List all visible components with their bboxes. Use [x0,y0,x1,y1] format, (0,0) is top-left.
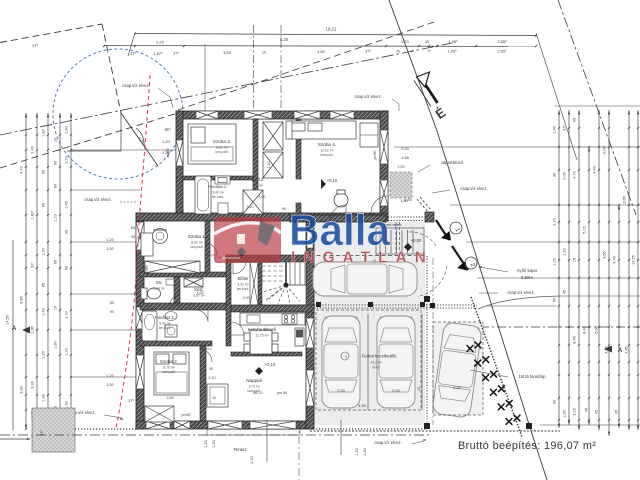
svg-text:2,10: 2,10 [187,302,194,306]
svg-text:pm 90: pm 90 [277,391,287,395]
svg-text:pm90: pm90 [145,266,149,275]
svg-text:2,8 m²: 2,8 m² [253,184,263,188]
svg-text:1,80: 1,80 [42,129,46,136]
svg-text:Fedett kocsibeálló: Fedett kocsibeálló [362,354,397,359]
svg-text:45: 45 [615,410,619,414]
svg-text:60: 60 [110,301,114,305]
svg-text:4,70: 4,70 [20,166,24,173]
svg-text:+0,10: +0,10 [327,178,338,183]
svg-text:1,20: 1,20 [42,351,46,358]
svg-text:5,00: 5,00 [595,326,599,333]
svg-text:1,20: 1,20 [355,448,359,455]
svg-text:pm90: pm90 [166,149,170,158]
svg-text:1,00: 1,00 [197,291,204,295]
svg-text:10: 10 [54,138,58,142]
svg-text:50: 50 [553,298,557,302]
svg-text:90: 90 [65,230,69,234]
svg-text:60: 60 [65,266,69,270]
svg-text:Terasz: Terasz [233,447,247,452]
svg-text:45: 45 [425,40,429,44]
svg-text:csap.víz elvez.: csap.víz elvez. [374,440,401,445]
svg-text:Közl.2.: Közl.2. [252,177,265,182]
svg-text:1,50: 1,50 [106,247,113,251]
svg-text:lam.padl.: lam.padl. [321,153,334,157]
svg-text:2,40: 2,40 [250,456,254,463]
svg-text:1,50: 1,50 [363,448,367,455]
svg-text:+0,00: +0,00 [411,238,422,243]
svg-text:1,00: 1,00 [307,287,311,294]
svg-text:70: 70 [396,50,400,54]
svg-text:40: 40 [417,387,421,391]
svg-text:5,06 m²: 5,06 m² [159,322,171,326]
svg-text:90: 90 [131,235,135,239]
svg-text:2,24 m²: 2,24 m² [153,287,165,291]
svg-text:3,65: 3,65 [623,196,627,203]
svg-text:Szoba 3.: Szoba 3. [213,139,231,144]
svg-text:2,70: 2,70 [65,311,69,318]
svg-text:12,02 m²: 12,02 m² [320,149,334,153]
svg-text:Szoba 2.: Szoba 2. [160,359,178,364]
svg-text:17,5 m²: 17,5 m² [248,385,260,389]
svg-text:1,80: 1,80 [54,341,58,348]
svg-text:80: 80 [54,260,58,264]
svg-text:záportározó: záportározó [441,160,464,165]
svg-text:30: 30 [553,400,557,404]
svg-text:Konyha-Étkező: Konyha-Étkező [248,327,277,332]
svg-text:15/15 faoszlop: 15/15 faoszlop [518,374,546,379]
svg-text:Fürdősz.2.: Fürdősz.2. [209,184,228,189]
svg-text:pm90: pm90 [182,413,191,417]
svg-text:1,90: 1,90 [553,126,557,133]
svg-text:45: 45 [595,410,599,414]
svg-text:3,42 m²: 3,42 m² [212,191,224,195]
svg-text:térkő: térkő [372,366,379,370]
svg-text:1,15: 1,15 [553,258,557,265]
svg-text:5,15: 5,15 [583,226,587,233]
svg-text:2,00: 2,00 [243,296,250,300]
svg-text:4,40: 4,40 [593,166,597,173]
svg-text:10: 10 [262,51,266,55]
svg-text:ker.burk.: ker.burk. [159,326,171,330]
svg-text:ker.burk.: ker.burk. [212,195,224,199]
svg-text:lam.padl.: lam.padl. [216,150,229,154]
svg-text:10: 10 [212,396,216,400]
svg-text:2,10: 2,10 [247,205,254,209]
svg-text:4,70: 4,70 [573,171,577,178]
svg-text:2,00: 2,00 [563,172,567,179]
svg-text:pm90: pm90 [373,151,377,160]
svg-text:csap.víz elvez.: csap.víz elvez. [507,290,534,295]
svg-text:1,50: 1,50 [106,383,113,387]
svg-text:csap.víz elvez.: csap.víz elvez. [354,94,381,99]
svg-text:Fürdősz.1.: Fürdősz.1. [155,315,175,320]
svg-text:1,50: 1,50 [65,401,69,408]
svg-text:45: 45 [585,408,589,412]
svg-text:lam.padl.: lam.padl. [191,245,204,249]
svg-text:1,40: 1,40 [42,308,46,315]
svg-text:2,50: 2,50 [337,388,346,393]
svg-text:15: 15 [573,258,577,262]
svg-text:60°: 60° [165,127,172,132]
svg-text:1,70: 1,70 [401,39,410,44]
svg-text:Nappali: Nappali [246,378,262,383]
svg-text:nyíló kapu: nyíló kapu [517,268,538,273]
svg-text:3,30: 3,30 [20,386,24,393]
svg-text:3,15: 3,15 [573,408,577,415]
svg-text:9,85: 9,85 [20,296,24,303]
svg-text:lam.padl.: lam.padl. [163,370,176,374]
svg-text:3,30: 3,30 [31,381,35,388]
svg-text:90: 90 [282,207,286,211]
svg-text:8,40: 8,40 [583,326,587,333]
svg-text:1,50: 1,50 [212,440,216,447]
svg-text:2,30: 2,30 [31,326,35,333]
svg-text:4,95: 4,95 [358,403,367,408]
svg-text:A: A [618,347,623,354]
svg-text:csap.víz elvez.: csap.víz elvez. [460,186,487,191]
svg-text:60: 60 [54,184,58,188]
svg-text:90: 90 [54,161,58,165]
svg-text:1,20: 1,20 [204,440,208,447]
svg-text:3,55: 3,55 [223,50,232,55]
svg-text:Szoba 4.: Szoba 4. [318,142,336,147]
svg-text:Előtér: Előtér [238,276,250,281]
svg-text:Szoba 1.: Szoba 1. [188,234,206,239]
svg-text:2,00: 2,00 [398,165,405,169]
svg-text:1,80: 1,80 [65,126,69,133]
svg-text:INGATLAN: INGATLAN [291,250,434,267]
svg-text:86,70: 86,70 [254,391,263,395]
svg-text:2,25: 2,25 [156,40,165,45]
svg-text:90: 90 [110,310,114,314]
svg-text:8,46: 8,46 [573,336,577,343]
svg-text:A: A [12,325,17,332]
svg-text:1,20: 1,20 [106,374,113,378]
svg-text:1,20: 1,20 [106,238,113,242]
svg-text:Balla: Balla [289,206,391,255]
svg-text:45: 45 [563,290,567,294]
svg-text:14,55: 14,55 [6,315,10,325]
svg-text:1,58: 1,58 [401,155,410,160]
svg-text:90: 90 [573,118,577,122]
svg-text:2,10: 2,10 [209,376,216,380]
svg-text:30: 30 [553,173,557,177]
svg-text:1,20: 1,20 [162,139,171,144]
svg-text:8,75 m²: 8,75 m² [163,366,175,370]
svg-text:6,52 m²: 6,52 m² [216,146,228,150]
svg-text:+0,10: +0,10 [265,362,276,367]
svg-text:1,45: 1,45 [65,201,69,208]
svg-text:2,50m: 2,50m [521,275,534,280]
svg-text:Bruttó beépítés: 196,07 m²: Bruttó beépítés: 196,07 m² [458,440,596,452]
svg-text:1,10: 1,10 [54,214,58,221]
svg-text:8,91 m²: 8,91 m² [191,241,203,245]
svg-text:85: 85 [42,283,46,287]
svg-text:2,65: 2,65 [167,396,174,400]
svg-text:4,80: 4,80 [317,49,326,54]
svg-text:90: 90 [209,367,213,371]
svg-text:2,40: 2,40 [31,146,35,153]
svg-text:1,10: 1,10 [65,156,69,163]
svg-text:60: 60 [131,226,135,230]
svg-text:18,21: 18,21 [326,27,338,32]
svg-text:3,65: 3,65 [603,251,607,258]
svg-text:csap.víz elvez.: csap.víz elvez. [84,197,111,202]
svg-text:1,00: 1,00 [259,195,266,199]
svg-text:90: 90 [42,170,46,174]
svg-text:2,20: 2,20 [453,385,462,390]
svg-text:2,10: 2,10 [267,162,271,169]
svg-text:1,30: 1,30 [42,394,46,401]
svg-text:1,20: 1,20 [65,348,69,355]
svg-text:14,55: 14,55 [632,255,636,265]
svg-text:43,2 m²: 43,2 m² [370,361,382,365]
svg-text:2,10: 2,10 [553,218,557,225]
svg-text:4,45: 4,45 [613,256,617,263]
svg-text:4,85: 4,85 [625,346,629,353]
svg-text:Wc: Wc [156,280,162,285]
svg-text:1,20: 1,20 [42,248,46,255]
svg-text:2,50: 2,50 [392,388,401,393]
svg-text:1,20: 1,20 [563,248,567,255]
svg-text:2,00: 2,00 [401,146,410,151]
svg-text:3,32 m²: 3,32 m² [237,283,249,287]
svg-text:6: 6 [345,355,347,359]
svg-text:csap.víz elvez.: csap.víz elvez. [122,83,149,88]
svg-text:10: 10 [54,306,58,310]
svg-text:80: 80 [42,203,46,207]
svg-text:ker.burk.: ker.burk. [237,287,249,291]
svg-text:11,75 m²: 11,75 m² [255,334,269,338]
svg-text:1,00: 1,00 [563,410,567,417]
